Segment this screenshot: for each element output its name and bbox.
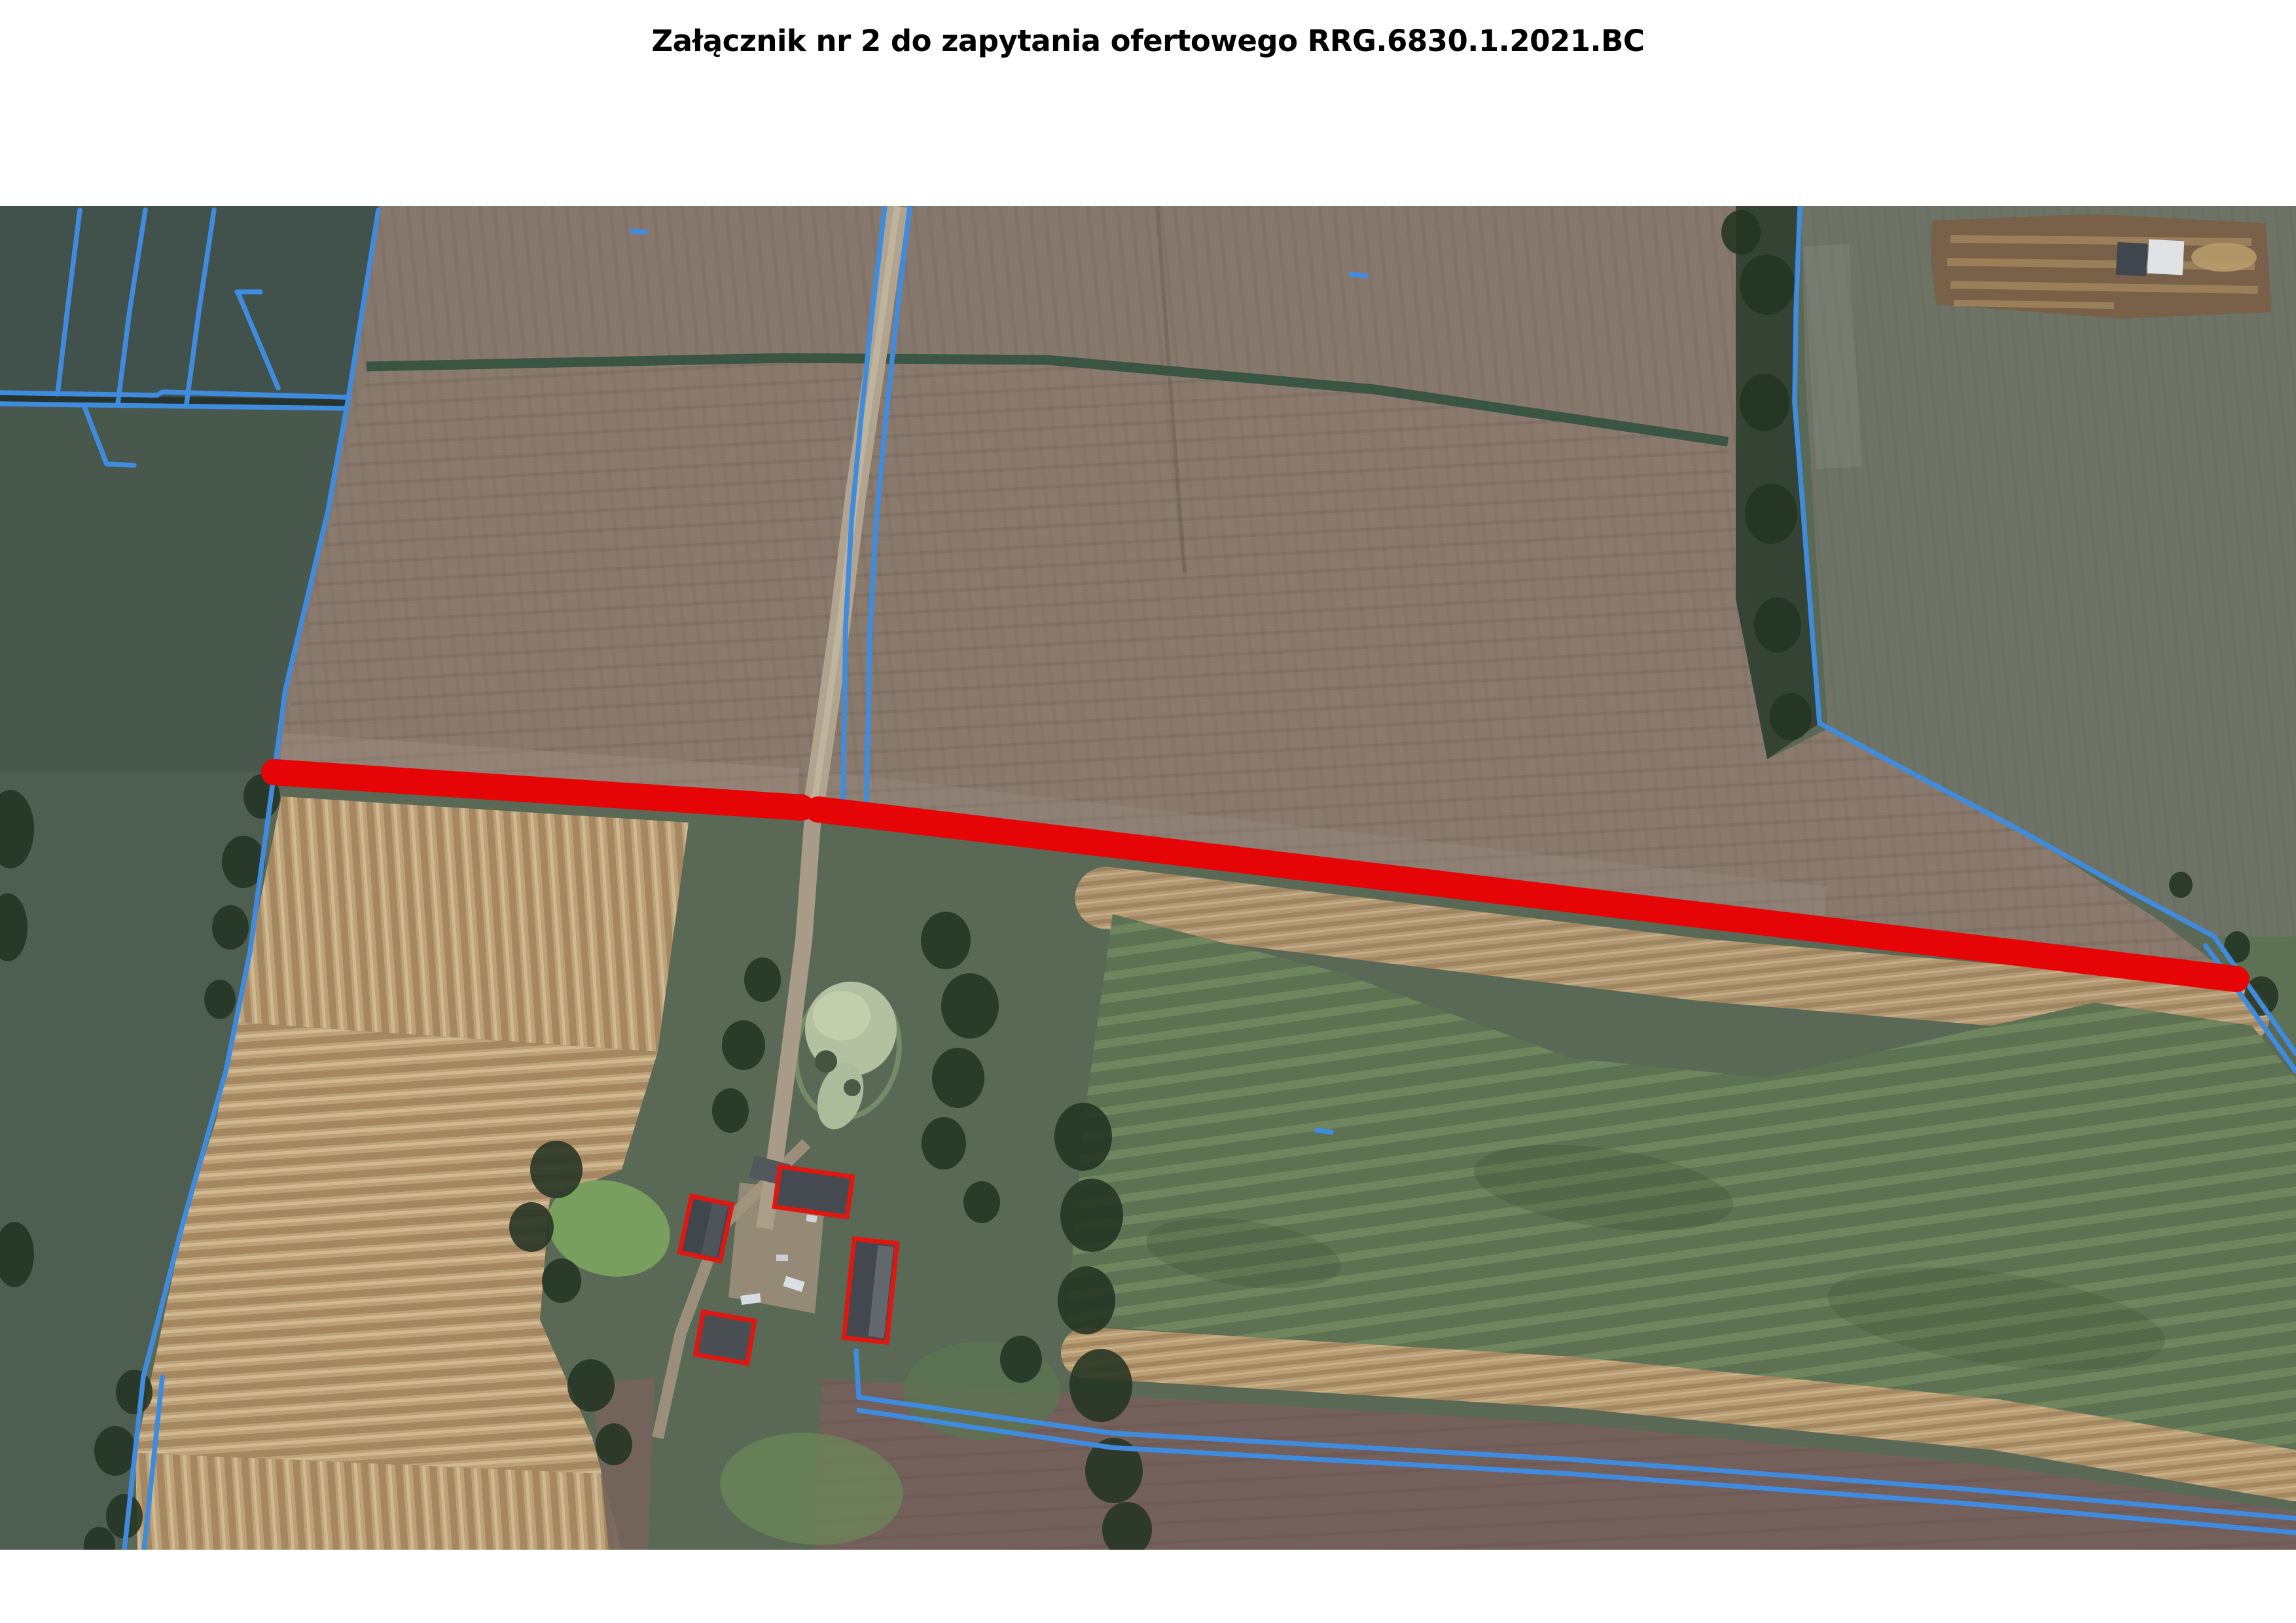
document-page: Załącznik nr 2 do zapytania ofertowego R… [0, 0, 2296, 1623]
photo-tint [0, 206, 2296, 1550]
aerial-map [0, 206, 2296, 1550]
map-image [0, 206, 2296, 1550]
page-title: Załącznik nr 2 do zapytania ofertowego R… [0, 24, 2296, 58]
